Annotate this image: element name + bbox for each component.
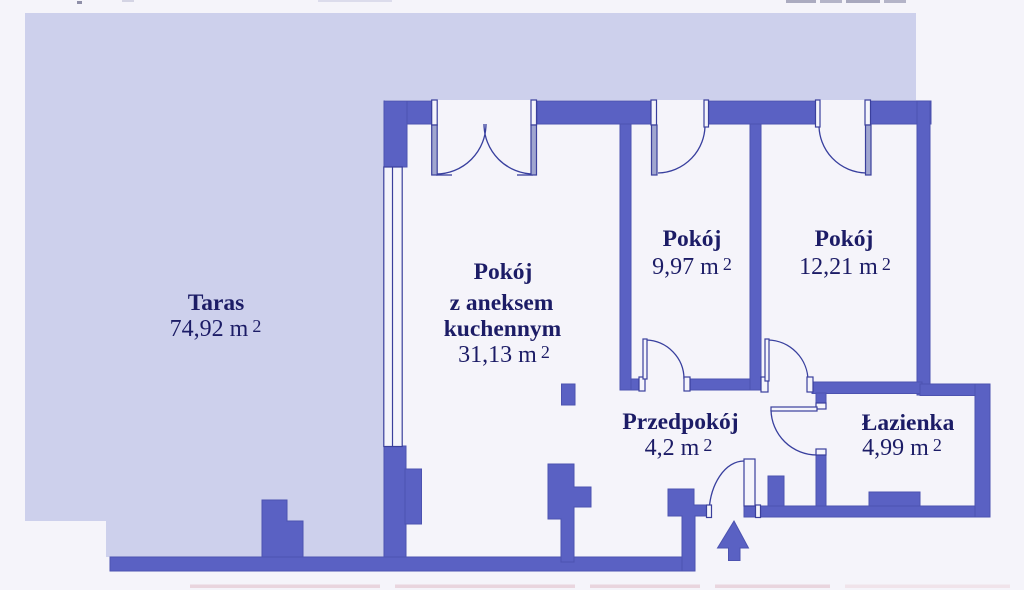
svg-text:12,21 m2: 12,21 m2 [799, 254, 891, 280]
svg-text:kuchennym: kuchennym [444, 316, 562, 342]
svg-text:z aneksem: z aneksem [450, 290, 554, 316]
svg-text:31,13 m2: 31,13 m2 [458, 342, 550, 368]
svg-text:Pokój: Pokój [663, 226, 722, 252]
svg-text:Łazienka: Łazienka [862, 410, 955, 436]
svg-text:Pokój: Pokój [815, 226, 874, 252]
svg-text:Taras: Taras [188, 290, 245, 316]
svg-text:74,92 m2: 74,92 m2 [170, 316, 262, 342]
svg-text:Przedpokój: Przedpokój [622, 409, 738, 435]
svg-text:Pokój: Pokój [474, 259, 533, 285]
